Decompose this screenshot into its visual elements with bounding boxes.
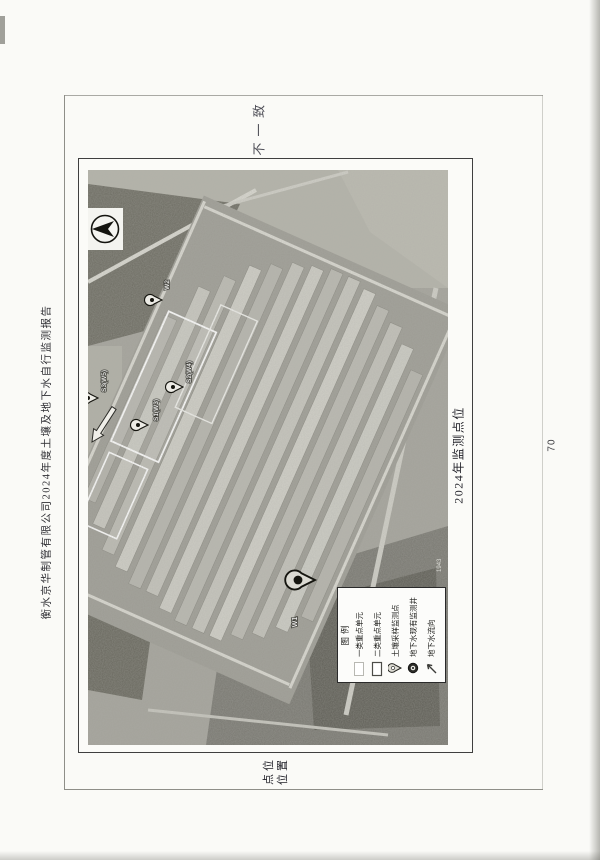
legend-item-label: 地下水流向 (426, 620, 437, 658)
scan-corner-mark (0, 16, 5, 44)
handwritten-note: 不一致 (249, 98, 268, 157)
marker-label: S2(W4) (186, 361, 193, 383)
legend-item: 二类重点单元 (368, 589, 386, 679)
legend-item-label: 一类重点单元 (354, 612, 365, 657)
table-border-right (542, 95, 543, 790)
report-header-title: 衡水京华制管有限公司2024年度土壤及地下水自行监测报告 (39, 305, 54, 620)
page-number: 70 (547, 438, 558, 451)
class2-unit-rect-icon (371, 657, 383, 679)
legend-item: 土壤采样监测点 (386, 589, 404, 679)
north-compass-icon (88, 208, 123, 250)
figure-caption: 2024年监测点位 (450, 406, 467, 504)
legend-item: 地下水现有监测井 (404, 589, 422, 679)
row-header-line2: 位置 (276, 757, 290, 785)
table-border-top (64, 95, 543, 96)
legend-item-label: 二类重点单元 (372, 612, 383, 657)
marker-label: W1 (292, 617, 299, 628)
row-header: 点位 位置 (262, 757, 290, 785)
map-watermark: 1943 (437, 558, 443, 572)
soil-sampling-pin-icon (388, 657, 402, 679)
marker-label: S1(W3) (153, 399, 160, 421)
groundwater-well-icon (407, 657, 419, 679)
legend-item-label: 土壤采样监测点 (390, 605, 401, 658)
marker-label: S3(W5) (101, 370, 108, 392)
scan-shadow (0, 851, 600, 860)
flow-arrow-icon (425, 657, 438, 679)
header-rule (64, 95, 65, 790)
class1-unit-rect-icon (353, 657, 365, 679)
row-header-line1: 点位 (262, 757, 276, 785)
legend-box: 图例 一类重点单元 二类重点单元 土壤采样监测点 (337, 587, 446, 683)
legend-item-label: 地下水现有监测井 (408, 597, 419, 657)
legend-item: 地下水流向 (422, 589, 440, 679)
legend-title: 图例 (340, 589, 350, 679)
marker-label: W2 (164, 280, 171, 290)
scan-shadow (589, 0, 600, 860)
table-border-bottom (64, 789, 543, 790)
legend-item: 一类重点单元 (350, 589, 368, 679)
